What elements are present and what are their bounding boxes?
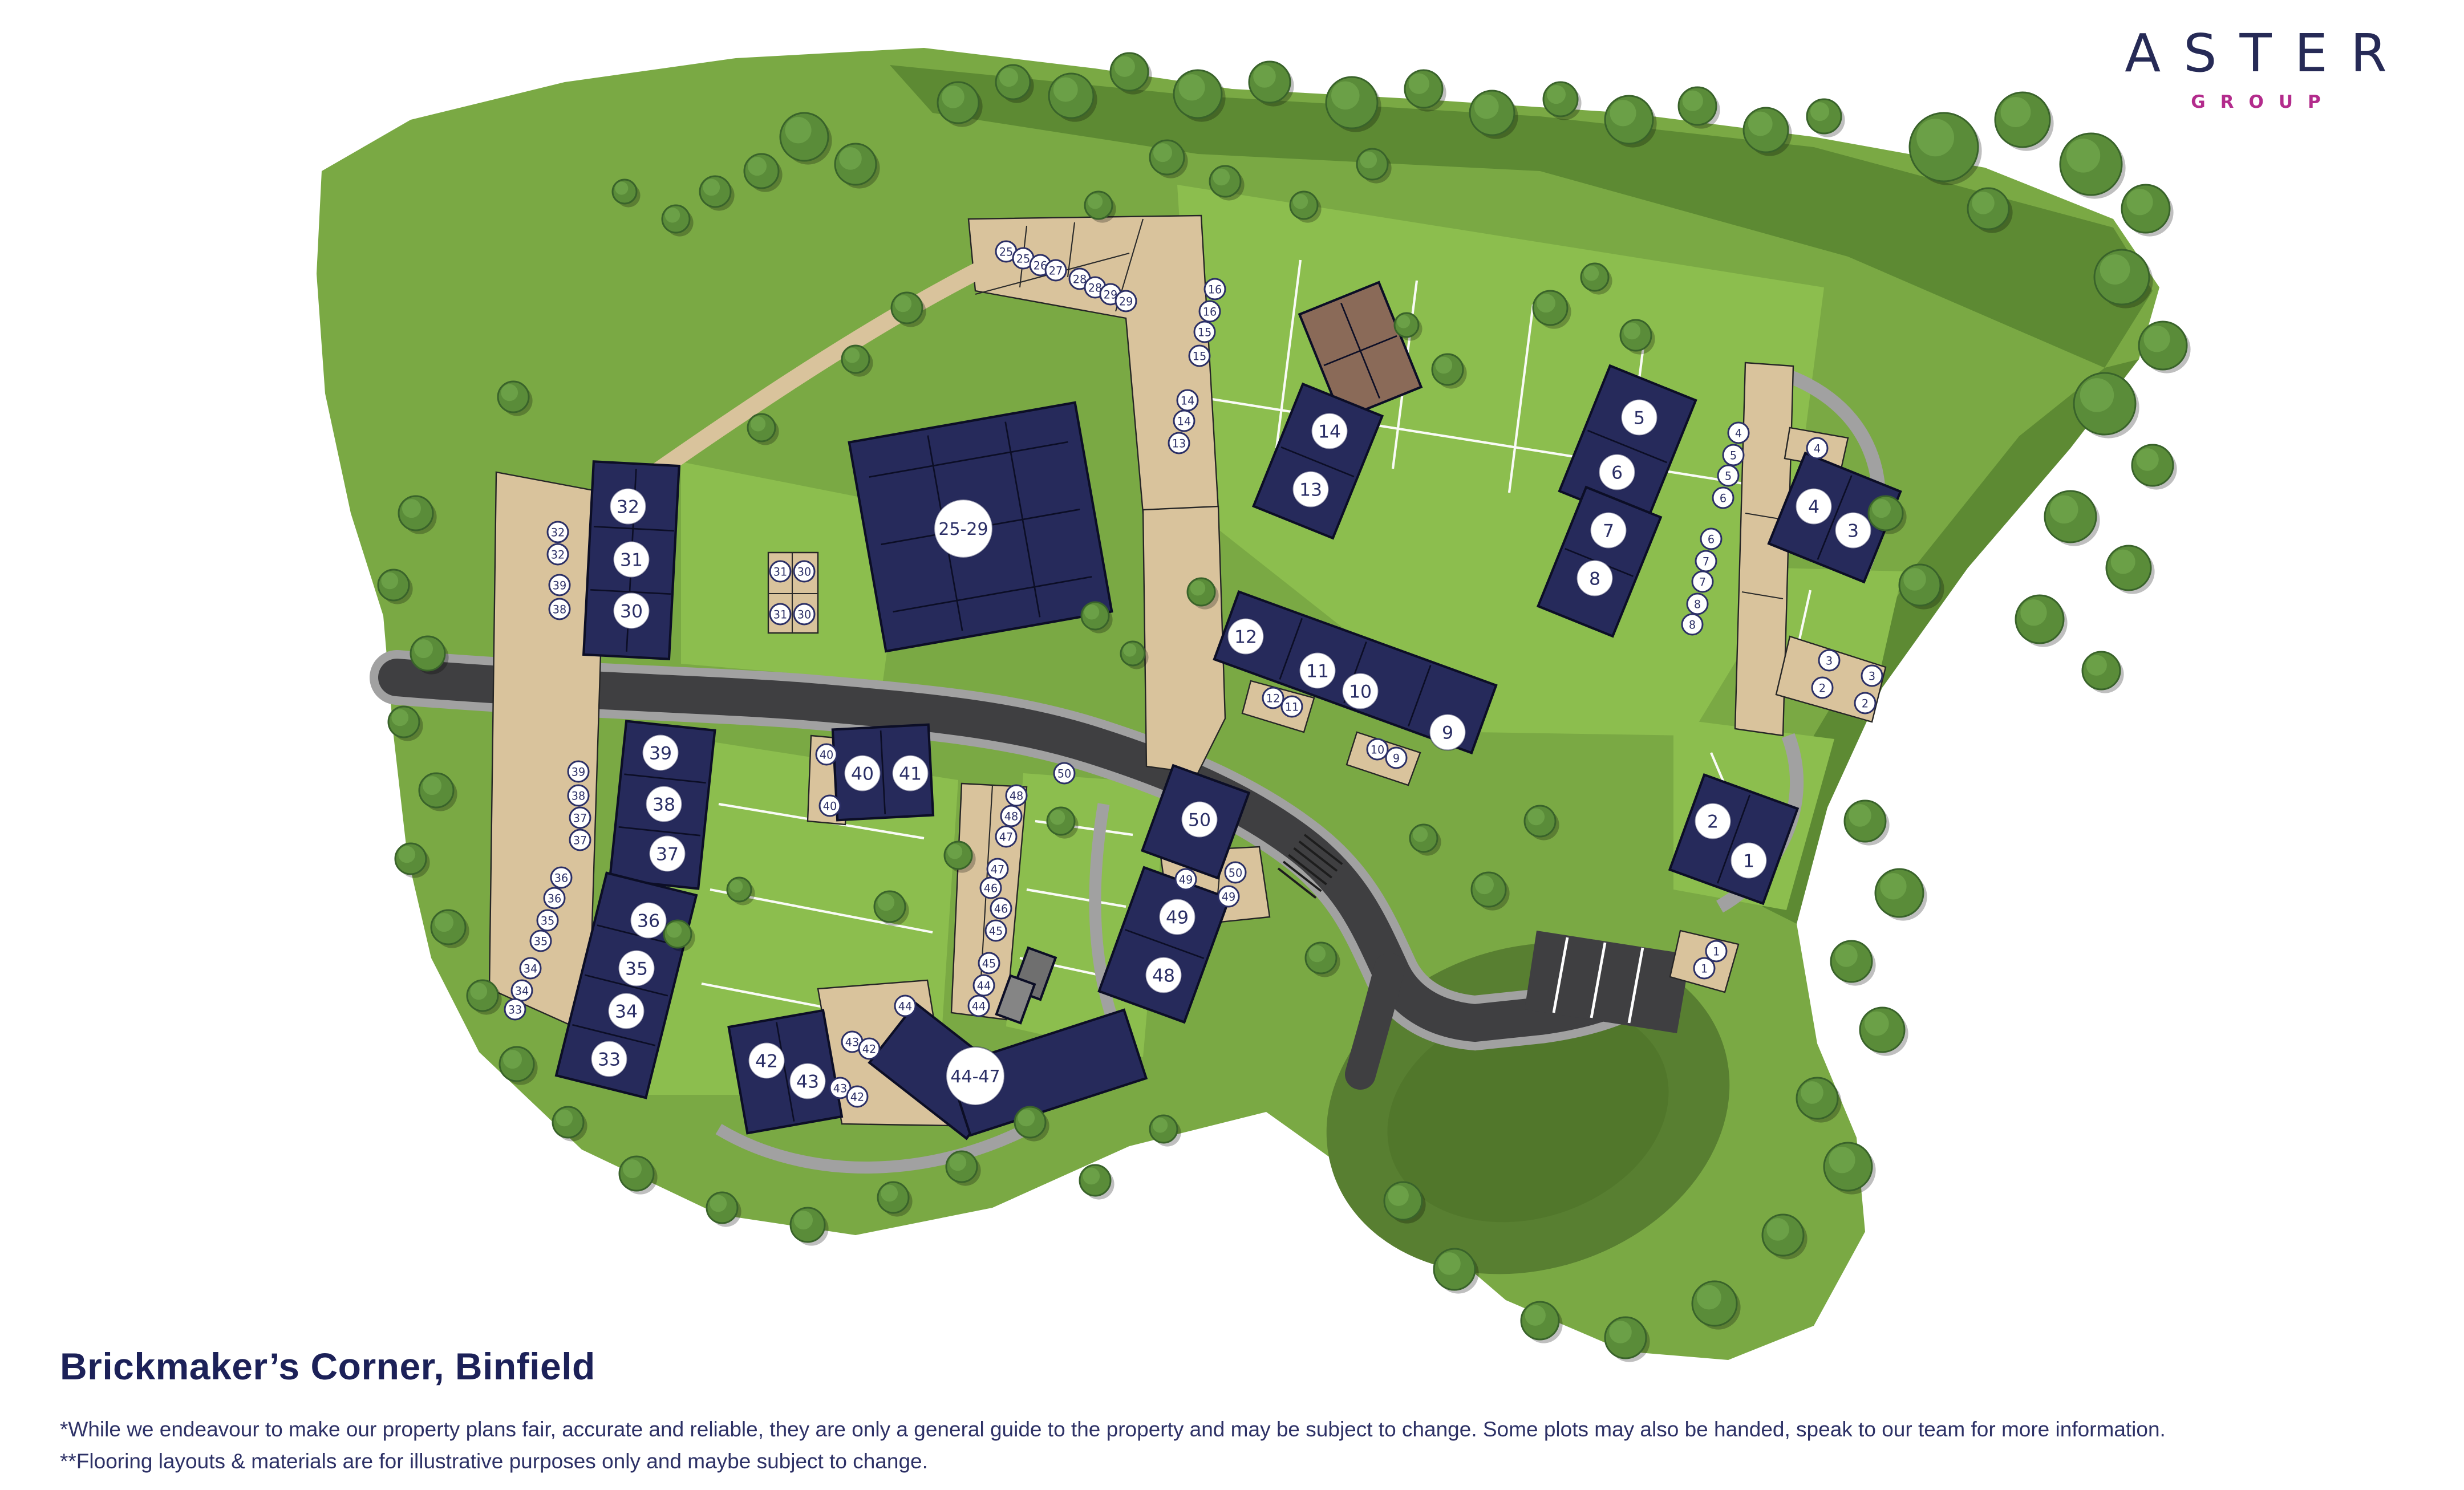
parking-bay-marker: 6 <box>1713 488 1733 508</box>
svg-text:4: 4 <box>1735 427 1742 440</box>
svg-text:8: 8 <box>1689 619 1696 632</box>
disclaimer-line-2: **Flooring layouts & materials are for i… <box>60 1450 928 1473</box>
tree-icon <box>2082 652 2124 693</box>
parking-bay-marker: 29 <box>1116 291 1136 311</box>
plot-marker: 31 <box>614 542 650 578</box>
plot-marker: 36 <box>631 903 667 939</box>
svg-text:45: 45 <box>989 925 1003 938</box>
svg-text:7: 7 <box>1603 521 1614 542</box>
parking-bay-marker: 8 <box>1687 594 1708 614</box>
tree-icon <box>1995 92 2054 151</box>
tree-icon <box>1845 801 1890 846</box>
parking-bay-marker: 9 <box>1386 748 1407 768</box>
parking-bay-marker: 27 <box>1045 260 1066 281</box>
svg-text:39: 39 <box>572 766 585 779</box>
svg-text:36: 36 <box>554 872 568 885</box>
plot-marker: 7 <box>1591 513 1627 549</box>
svg-text:30: 30 <box>620 602 643 622</box>
svg-text:5: 5 <box>1634 408 1645 429</box>
parking-bay-marker: 3 <box>1819 650 1839 671</box>
svg-text:7: 7 <box>1699 576 1706 589</box>
svg-text:2: 2 <box>1707 812 1719 833</box>
plot-marker: 6 <box>1599 454 1635 490</box>
plot-marker: 42 <box>749 1043 785 1079</box>
plot-marker: 4 <box>1796 489 1832 525</box>
parking-bay-marker: 38 <box>549 599 570 619</box>
parking-bay-marker: 50 <box>1225 862 1246 883</box>
svg-text:11: 11 <box>1306 661 1329 682</box>
plot-marker: 48 <box>1146 957 1182 993</box>
tree-icon <box>1831 941 1876 986</box>
svg-text:14: 14 <box>1181 395 1194 408</box>
tree-icon <box>2122 185 2174 237</box>
tree-icon <box>1080 1165 1115 1200</box>
aster-group-logo: ASTER GROUP <box>2122 23 2390 112</box>
svg-text:42: 42 <box>862 1043 876 1056</box>
svg-text:43: 43 <box>845 1036 859 1049</box>
logo-sub-text: GROUP <box>2122 92 2405 112</box>
plot-marker: 2 <box>1695 803 1731 839</box>
svg-text:50: 50 <box>1057 768 1071 781</box>
svg-text:9: 9 <box>1442 723 1453 744</box>
parking-bay-marker: 45 <box>986 920 1006 941</box>
tree-icon <box>2132 445 2177 490</box>
tree-icon <box>2016 595 2068 647</box>
tree-icon <box>2139 322 2191 373</box>
svg-text:49: 49 <box>1222 891 1235 904</box>
parking-bay-marker: 42 <box>859 1038 880 1059</box>
parking-bay-marker: 46 <box>991 898 1011 919</box>
plot-marker: 9 <box>1430 714 1466 750</box>
plot-marker: 37 <box>650 836 686 872</box>
parking-bay-marker: 35 <box>530 931 551 951</box>
parking-bay-marker: 46 <box>980 878 1001 898</box>
svg-text:40: 40 <box>851 764 874 785</box>
parking-bay-marker: 48 <box>1006 785 1027 806</box>
svg-text:38: 38 <box>653 795 675 815</box>
parking-bay-marker: 38 <box>568 785 589 806</box>
parking-bay-marker: 47 <box>987 859 1008 879</box>
parking-bay-marker: 13 <box>1169 433 1189 453</box>
plot-marker: 5 <box>1622 400 1657 436</box>
plot-marker: 1 <box>1731 843 1767 879</box>
svg-text:41: 41 <box>899 764 922 785</box>
svg-text:12: 12 <box>1266 692 1280 705</box>
plot-marker: 50 <box>1182 802 1218 838</box>
parking-bay-marker: 45 <box>979 953 999 973</box>
plot-marker: 12 <box>1228 619 1264 655</box>
svg-text:4: 4 <box>1808 497 1819 518</box>
plot-marker: 13 <box>1293 472 1329 508</box>
parking-bay-marker: 34 <box>512 980 532 1001</box>
parking-bay-marker: 7 <box>1692 571 1713 592</box>
svg-text:29: 29 <box>1119 295 1133 308</box>
svg-text:25: 25 <box>999 246 1013 259</box>
page: 2525262728282929161615151414134455667788… <box>0 0 2464 1490</box>
svg-text:34: 34 <box>524 963 537 976</box>
svg-text:14: 14 <box>1318 422 1341 442</box>
parking-bay-marker: 14 <box>1177 390 1198 411</box>
plot-marker: 32 <box>610 489 646 525</box>
development-title: Brickmaker’s Corner, Binfield <box>60 1345 595 1388</box>
svg-text:6: 6 <box>1720 492 1727 505</box>
svg-text:39: 39 <box>553 579 566 592</box>
svg-text:30: 30 <box>797 608 811 622</box>
svg-text:49: 49 <box>1166 908 1189 928</box>
svg-text:16: 16 <box>1203 306 1217 319</box>
svg-text:42: 42 <box>755 1051 778 1072</box>
svg-text:48: 48 <box>1010 790 1023 803</box>
parking-bay-marker: 44 <box>895 996 915 1016</box>
svg-text:44: 44 <box>972 1000 986 1013</box>
svg-text:10: 10 <box>1349 682 1372 703</box>
parking-bay-marker: 37 <box>570 807 590 828</box>
plot-marker: 44-47 <box>946 1047 1004 1105</box>
svg-text:46: 46 <box>984 882 998 895</box>
parking-bay-marker: 16 <box>1205 279 1225 299</box>
svg-text:33: 33 <box>508 1004 522 1017</box>
svg-text:49: 49 <box>1179 874 1193 887</box>
parking-bay-marker: 42 <box>847 1086 868 1107</box>
tree-icon <box>1807 99 1845 137</box>
svg-text:46: 46 <box>994 903 1008 916</box>
svg-text:40: 40 <box>823 800 837 813</box>
svg-text:35: 35 <box>625 959 648 980</box>
plot-marker: 10 <box>1343 673 1379 709</box>
tree-icon <box>1860 1008 1908 1056</box>
svg-text:9: 9 <box>1393 752 1400 765</box>
svg-text:34: 34 <box>615 1002 638 1022</box>
svg-text:1: 1 <box>1713 945 1720 959</box>
plot-marker: 49 <box>1160 899 1195 935</box>
parking-bay-marker: 3 <box>1862 665 1882 686</box>
parking-bay-marker: 40 <box>816 744 837 765</box>
svg-text:44-47: 44-47 <box>950 1067 1000 1087</box>
svg-text:31: 31 <box>773 608 787 622</box>
parking-bay-marker: 40 <box>820 795 840 816</box>
plot-marker: 3 <box>1835 513 1871 549</box>
parking-bay-marker: 44 <box>974 975 994 996</box>
plot-marker: 40 <box>845 756 881 791</box>
svg-text:32: 32 <box>617 497 639 518</box>
svg-text:44: 44 <box>977 980 991 993</box>
tree-icon <box>2106 546 2155 594</box>
parking-bay-marker: 8 <box>1682 614 1703 635</box>
svg-text:44: 44 <box>898 1000 912 1013</box>
svg-text:6: 6 <box>1708 533 1715 546</box>
parking-bay-marker: 49 <box>1176 869 1196 890</box>
svg-text:3: 3 <box>1826 655 1833 668</box>
svg-text:40: 40 <box>820 749 833 762</box>
svg-text:42: 42 <box>850 1091 864 1104</box>
svg-text:25-29: 25-29 <box>938 519 988 539</box>
parking-bay-marker: 14 <box>1174 411 1194 431</box>
svg-text:4: 4 <box>1814 442 1821 456</box>
svg-text:13: 13 <box>1172 437 1186 450</box>
parking-bay-marker: 49 <box>1218 886 1239 907</box>
svg-text:30: 30 <box>797 566 811 579</box>
svg-text:12: 12 <box>1234 627 1257 648</box>
svg-text:43: 43 <box>796 1072 819 1093</box>
svg-text:15: 15 <box>1193 350 1206 363</box>
parking-bay-marker: 37 <box>570 830 590 850</box>
svg-text:47: 47 <box>991 863 1004 876</box>
parking-bay-marker: 36 <box>551 867 572 888</box>
svg-text:2: 2 <box>1819 682 1826 695</box>
svg-text:27: 27 <box>1049 265 1063 278</box>
plot-marker: 38 <box>646 786 682 822</box>
tree-icon <box>2060 133 2126 199</box>
parking-bay-marker: 4 <box>1728 423 1749 443</box>
disclaimer-line-1: *While we endeavour to make our property… <box>60 1418 2166 1442</box>
svg-text:31: 31 <box>620 550 643 571</box>
svg-text:15: 15 <box>1198 326 1211 339</box>
svg-text:45: 45 <box>982 957 996 971</box>
parking-bay-marker: 32 <box>548 544 568 565</box>
parking-bay-marker: 5 <box>1723 445 1744 465</box>
svg-text:8: 8 <box>1694 598 1701 611</box>
parking-bay-marker: 11 <box>1282 696 1302 717</box>
svg-text:36: 36 <box>637 911 660 932</box>
parking-bay-marker: 1 <box>1694 958 1715 979</box>
svg-text:35: 35 <box>541 915 554 928</box>
svg-text:37: 37 <box>656 845 679 865</box>
parking-bay-marker: 7 <box>1696 551 1716 571</box>
building-plots-42-43 <box>729 1010 842 1133</box>
plot-marker: 33 <box>591 1041 627 1077</box>
plot-marker: 35 <box>619 951 655 986</box>
parking-bay-marker: 16 <box>1199 301 1220 322</box>
svg-text:8: 8 <box>1589 569 1600 590</box>
svg-text:43: 43 <box>833 1082 847 1095</box>
plot-marker: 34 <box>609 993 645 1029</box>
svg-text:11: 11 <box>1285 701 1299 714</box>
svg-text:39: 39 <box>649 744 672 764</box>
plot-marker: 11 <box>1300 653 1336 689</box>
svg-text:1: 1 <box>1743 851 1754 872</box>
parking-bay-marker: 39 <box>568 761 589 782</box>
plot-marker: 25-29 <box>934 500 992 558</box>
svg-text:10: 10 <box>1371 744 1384 757</box>
svg-text:47: 47 <box>999 831 1013 844</box>
site-plan-map: 2525262728282929161615151414134455667788… <box>0 0 2464 1490</box>
parking-bay-marker: 15 <box>1189 346 1210 366</box>
parking-bay-marker: 30 <box>794 604 814 624</box>
parking-bay-marker: 31 <box>770 561 791 582</box>
plot-marker: 41 <box>893 756 929 791</box>
svg-text:3: 3 <box>1869 670 1875 683</box>
svg-text:32: 32 <box>551 526 565 539</box>
parking-bay-marker: 47 <box>996 826 1016 847</box>
svg-text:50: 50 <box>1188 810 1211 831</box>
svg-text:5: 5 <box>1725 470 1732 483</box>
parking-bay-marker: 30 <box>794 561 814 582</box>
tree-icon <box>1875 869 1927 921</box>
parking-bay-marker: 50 <box>1054 763 1075 783</box>
parking-bay-marker: 32 <box>548 522 568 542</box>
svg-text:48: 48 <box>1004 810 1018 823</box>
svg-text:7: 7 <box>1703 555 1709 569</box>
parking-bay-marker: 36 <box>544 888 565 908</box>
parking-bay-marker: 5 <box>1718 465 1738 486</box>
plot-marker: 8 <box>1577 561 1613 596</box>
parking-bay-marker: 12 <box>1263 688 1283 708</box>
svg-text:5: 5 <box>1730 449 1737 462</box>
svg-text:6: 6 <box>1611 463 1623 484</box>
parking-bay-marker: 35 <box>537 910 558 931</box>
parking-bay-marker: 4 <box>1807 438 1827 458</box>
svg-text:34: 34 <box>515 985 529 998</box>
svg-text:33: 33 <box>598 1050 621 1070</box>
svg-text:37: 37 <box>573 834 587 847</box>
svg-text:1: 1 <box>1701 963 1708 976</box>
svg-text:14: 14 <box>1177 415 1191 428</box>
svg-text:2: 2 <box>1862 697 1869 711</box>
svg-text:31: 31 <box>773 566 787 579</box>
parking-bay-marker: 6 <box>1701 529 1721 549</box>
parking-bay-marker: 39 <box>549 575 570 595</box>
parking-bay-marker: 2 <box>1855 693 1875 713</box>
plot-marker: 30 <box>614 593 650 629</box>
parking-bay-marker: 2 <box>1812 677 1833 698</box>
parking-bay-marker: 10 <box>1367 739 1388 760</box>
svg-text:13: 13 <box>1299 480 1322 501</box>
svg-text:48: 48 <box>1152 966 1175 986</box>
parking-bay-marker: 15 <box>1194 322 1215 342</box>
svg-text:16: 16 <box>1208 283 1222 297</box>
svg-text:35: 35 <box>534 935 548 948</box>
parking-bay-marker: 31 <box>770 604 791 624</box>
svg-text:38: 38 <box>553 603 566 616</box>
svg-text:3: 3 <box>1847 521 1859 542</box>
svg-text:32: 32 <box>551 549 565 562</box>
svg-text:37: 37 <box>573 812 587 825</box>
svg-text:25: 25 <box>1016 253 1030 266</box>
svg-text:50: 50 <box>1229 867 1242 880</box>
parking-bay-marker: 33 <box>505 999 525 1020</box>
svg-text:38: 38 <box>572 790 585 803</box>
parking-bay-marker: 48 <box>1001 806 1022 826</box>
svg-text:36: 36 <box>548 892 561 906</box>
tree-icon <box>2045 491 2100 546</box>
plot-marker: 39 <box>643 735 679 771</box>
plot-marker: 43 <box>790 1063 826 1099</box>
logo-brand-text: ASTER <box>2122 23 2413 84</box>
parking-bay-marker: 34 <box>520 958 541 979</box>
plot-marker: 14 <box>1312 413 1348 449</box>
parking-bay-marker: 44 <box>968 996 989 1016</box>
